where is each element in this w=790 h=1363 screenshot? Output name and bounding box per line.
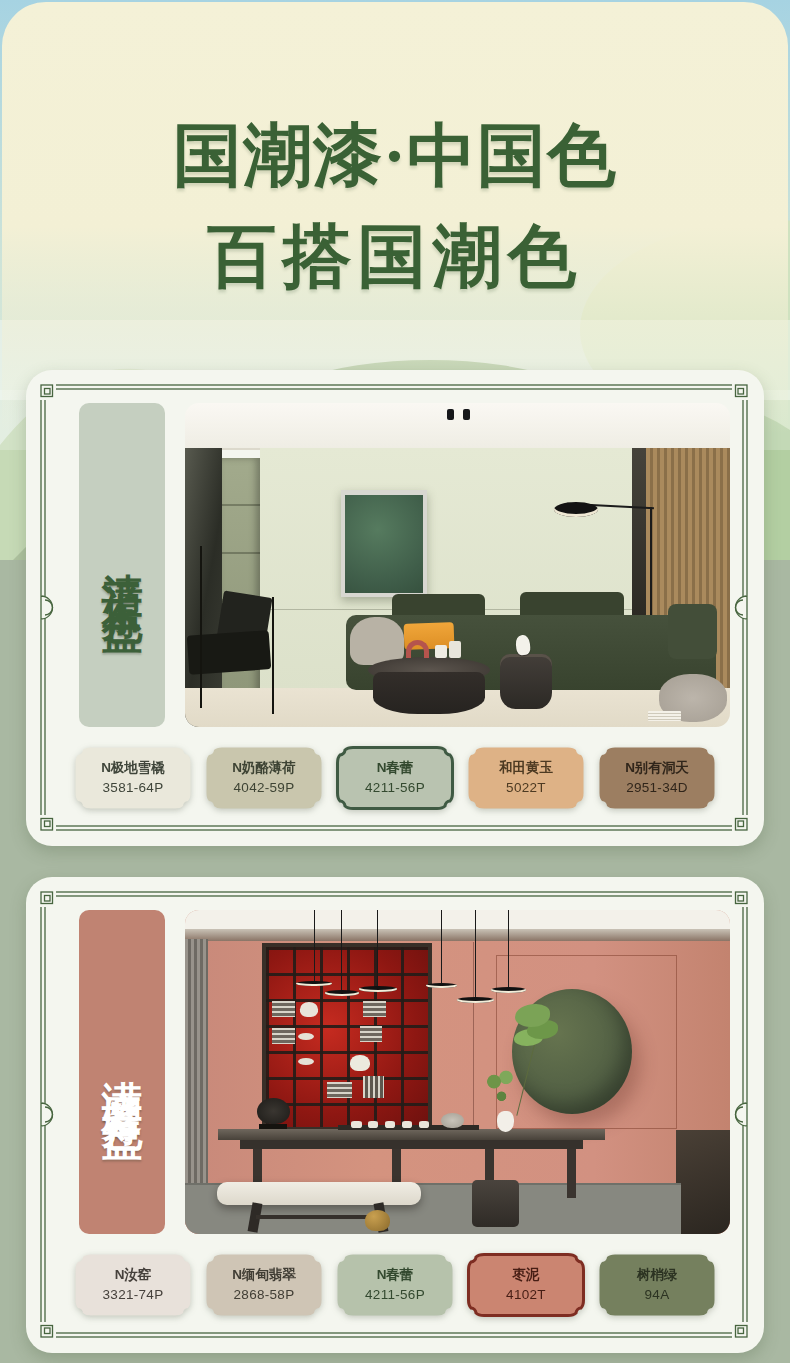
pendant-light [426, 983, 458, 989]
color-swatch: 和田黄玉 5022T [467, 746, 585, 810]
color-swatch: N奶酪薄荷 4042-59P [205, 746, 323, 810]
pendant-light [491, 987, 526, 993]
swatch-code: 5022T [506, 778, 546, 798]
swatch-row: N极地雪橇 3581-64P N奶酪薄荷 4042-59P N春蕾 4211-5… [26, 746, 764, 810]
title-line-1: 国潮漆·中国色 [0, 122, 790, 191]
ceiling-cove [185, 929, 730, 940]
shelf-box [272, 1001, 295, 1017]
shelf-box [363, 1076, 384, 1098]
swatch-code: 4211-56P [365, 1285, 425, 1305]
shelf-box [360, 1026, 383, 1042]
swatch-row: N汝窑 3321-74P N缅甸翡翠 2868-58P N春蕾 4211-56P [26, 1253, 764, 1317]
swatch-name: N缅甸翡翠 [232, 1265, 296, 1285]
color-swatch: N缅甸翡翠 2868-58P [205, 1253, 323, 1317]
swatch-name: N春蕾 [377, 1265, 414, 1285]
paper-stack [648, 711, 681, 721]
lounge-chair-frame [272, 597, 274, 714]
bench-crossbar [256, 1215, 381, 1220]
iron-kettle [257, 1098, 290, 1125]
wall-panel-line [473, 942, 474, 1127]
swatch-code: 4102T [506, 1285, 546, 1305]
ceiling-spotlight [447, 409, 454, 420]
shelf-teapot [300, 1002, 318, 1016]
tea-cup [351, 1121, 361, 1129]
display-shelf [262, 943, 432, 1131]
color-swatch: N春蕾 4211-56P [336, 1253, 454, 1317]
palette-title-mantingfang: 满庭芳色盘 [79, 910, 165, 1234]
swatch-code: 3581-64P [103, 778, 164, 798]
gold-pot [365, 1210, 390, 1231]
ceiling [185, 403, 730, 450]
tea-cup [419, 1121, 429, 1129]
lounge-chair-frame [200, 546, 202, 708]
red-arch-decor [406, 640, 429, 657]
coffee-table-body [373, 672, 485, 714]
shelf-box [363, 1001, 386, 1017]
tea-cup [385, 1121, 395, 1129]
color-swatch-featured: 枣泥 4102T [467, 1253, 585, 1317]
pendant-stem [314, 910, 315, 981]
shelf-box [327, 1082, 351, 1098]
room-photo-tea-room [185, 910, 730, 1234]
pendant-stem [341, 910, 342, 991]
color-swatch: N汝窑 3321-74P [74, 1253, 192, 1317]
pendant-stem [377, 910, 378, 987]
swatch-name: N春蕾 [377, 758, 414, 778]
sofa-armrest [668, 604, 717, 659]
swatch-code: 2951-34D [626, 778, 688, 798]
pendant-light [296, 981, 332, 987]
side-table [500, 654, 552, 709]
palette-title-qingpingle: 清平乐色盘 [79, 403, 165, 727]
ceiling-spotlight [463, 409, 470, 420]
lounge-chair-seat [186, 630, 270, 674]
swatch-name: N奶酪薄荷 [232, 758, 296, 778]
swatch-code: 4211-56P [365, 778, 425, 798]
color-swatch: N极地雪橇 3581-64P [74, 746, 192, 810]
swatch-name: N极地雪橇 [101, 758, 165, 778]
shelf-box [272, 1028, 295, 1044]
kettle-stand [259, 1124, 287, 1129]
swatch-name: 和田黄玉 [499, 758, 553, 778]
swatch-code: 4042-59P [234, 778, 295, 798]
swatch-name: N汝窑 [115, 1265, 152, 1285]
wall-artwork [341, 490, 427, 597]
pendant-stem [441, 910, 442, 983]
pendant-stem [475, 910, 476, 997]
swatch-code: 2868-58P [234, 1285, 295, 1305]
pendant-stem [508, 910, 509, 988]
mirror-panel [185, 448, 222, 727]
poster-page: 国潮漆·中国色 百搭国潮色 [0, 0, 790, 1363]
palette-card-qingpingle: 清平乐色盘 [26, 370, 764, 846]
tea-cup [402, 1121, 412, 1129]
palette-card-mantingfang: 满庭芳色盘 [26, 877, 764, 1353]
shelf-teapot [350, 1055, 369, 1071]
stool [472, 1180, 518, 1227]
swatch-name: N别有洞天 [625, 758, 689, 778]
pendant-light [359, 986, 397, 992]
floor-lamp-shade [554, 502, 598, 517]
color-swatch: 树梢绿 94A [598, 1253, 716, 1317]
vase-branch [485, 1069, 515, 1111]
pendant-light [325, 990, 359, 996]
swatch-name: 枣泥 [513, 1265, 540, 1285]
bench-cushion [217, 1182, 421, 1205]
swatch-name: 树梢绿 [637, 1265, 678, 1285]
swatch-code: 3321-74P [103, 1285, 164, 1305]
tea-table-apron [240, 1140, 583, 1150]
white-cup [449, 641, 461, 657]
tea-cup [368, 1121, 378, 1129]
color-swatch-featured: N春蕾 4211-56P [336, 746, 454, 810]
artwork-canvas [345, 495, 423, 592]
tea-table-top [218, 1129, 605, 1140]
white-cup [435, 645, 447, 658]
room-photo-living-room [185, 403, 730, 727]
swatch-code: 94A [645, 1285, 670, 1305]
teapot [441, 1113, 464, 1129]
poster-title: 国潮漆·中国色 百搭国潮色 [0, 122, 790, 292]
title-line-2: 百搭国潮色 [0, 223, 790, 292]
tea-table-leg [567, 1149, 576, 1198]
pendant-light [457, 997, 494, 1003]
curtain [185, 939, 208, 1195]
color-swatch: N别有洞天 2951-34D [598, 746, 716, 810]
plant-leaves [515, 1004, 550, 1027]
marble-floor-right [676, 1130, 731, 1234]
